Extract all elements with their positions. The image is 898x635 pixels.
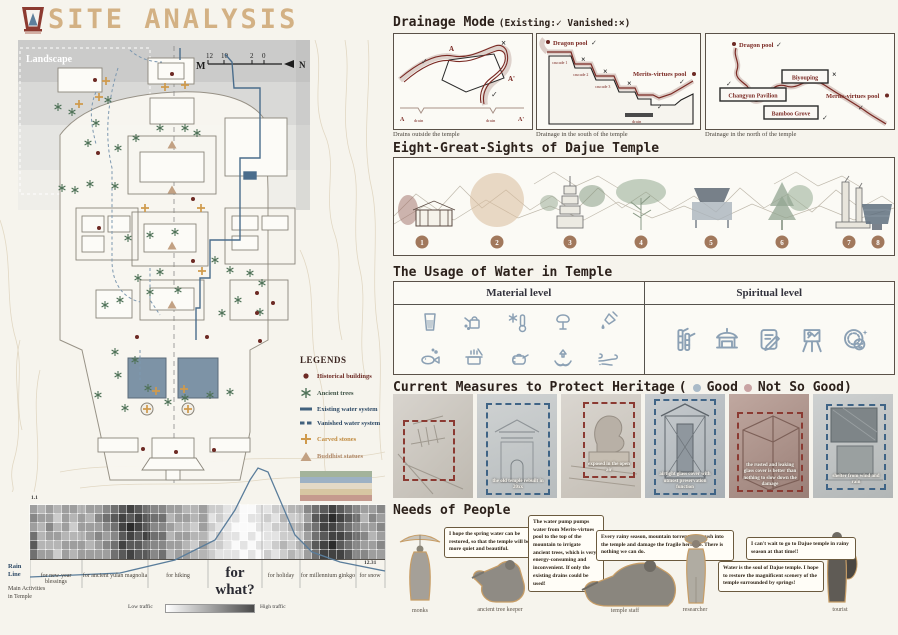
svg-text:4: 4: [639, 239, 643, 247]
heritage-legend-open: (: [679, 380, 687, 395]
sight-numbers: 1 2 3 4 5 6 7 8: [416, 236, 885, 249]
heatmap-cell: [103, 523, 111, 532]
check-mark: ✓: [657, 103, 663, 111]
material-icons-row2: [394, 340, 644, 375]
heatmap-cell: [54, 541, 62, 550]
heatmap-cell: [54, 532, 62, 541]
biyouping-label: Biyouping: [792, 76, 818, 82]
svg-text:1: 1: [420, 239, 424, 247]
heatmap-cell: [232, 523, 240, 532]
needs-title: Needs of People: [393, 503, 510, 518]
svg-text:8: 8: [876, 239, 880, 247]
heatmap-cell: [256, 514, 264, 523]
heatmap-cell: [46, 514, 54, 523]
section-a-label: A: [449, 45, 454, 53]
offering-hands-icon: [551, 345, 575, 369]
good-frame: airtight glass cover with utmost preserv…: [654, 399, 716, 495]
scale-m-label: M: [196, 61, 206, 72]
heatmap-cell: [95, 550, 103, 559]
good-dot-icon: [693, 384, 701, 392]
photo-caption: the rusted and leaking glass cover is be…: [741, 463, 799, 488]
pagoda-logo-icon: [20, 5, 46, 34]
heatmap-cell: [135, 532, 143, 541]
heatmap-cell: [183, 505, 191, 514]
legend-band-chart: [300, 471, 372, 501]
heritage-bad-label: Not So Good: [758, 380, 844, 395]
heatmap-cell: [199, 523, 207, 532]
heatmap-cell: [135, 523, 143, 532]
heatmap-cell: [369, 550, 377, 559]
sight-1-temple-hall: [398, 195, 455, 226]
heatmap-cell: [127, 514, 135, 523]
heatmap-cell: [78, 532, 86, 541]
legend-label: Carved stones: [317, 436, 356, 443]
tourist-quote-bubble: I can't wait to go to Dajue temple in ra…: [746, 537, 856, 560]
heatmap-cell: [54, 550, 62, 559]
cross-mark: ×: [832, 70, 837, 79]
not-so-good-dot-icon: [744, 384, 752, 392]
heatmap-cell: [30, 505, 38, 514]
merits-pool-label: Merits-virtues pool: [633, 71, 686, 78]
material-icons-row1: [394, 305, 644, 340]
legend-item-ancient-trees: Ancient trees: [300, 387, 388, 399]
legend-label: Buddhist statues: [317, 453, 363, 460]
check-mark: ✓: [822, 114, 828, 122]
cleaning-dropper-icon: [595, 310, 619, 334]
heatmap-cell: [127, 505, 135, 514]
heatmap-cell: [111, 550, 119, 559]
heatmap-cell: [208, 550, 216, 559]
heatmap-cell: [199, 541, 207, 550]
heatmap-cell: [30, 550, 38, 559]
heatmap-cell: [191, 532, 199, 541]
heatmap-cell: [191, 505, 199, 514]
heatmap-cell: [280, 550, 288, 559]
heatmap-cell: [199, 550, 207, 559]
heatmap-cell: [329, 523, 337, 532]
heatmap-cell: [127, 550, 135, 559]
check-mark: ✓: [491, 90, 498, 99]
section-a-prime-label: A': [518, 117, 524, 123]
heatmap-cell: [312, 541, 320, 550]
heatmap-cell: [95, 523, 103, 532]
ancient-tree-asterisk-icon: [300, 387, 312, 399]
heatmap-cell: [216, 523, 224, 532]
drains-outside-diagram: A A' ✓ ✓ × A A' drain drain: [394, 34, 532, 129]
heatmap-cell: [103, 541, 111, 550]
fish-pond-icon: [418, 345, 442, 369]
heatmap-cell: [86, 523, 94, 532]
heatmap-cell: [280, 532, 288, 541]
north-label: N: [299, 60, 306, 70]
heatmap-cell: [240, 523, 248, 532]
not-so-good-frame: [403, 420, 455, 481]
heatmap-cell: [232, 550, 240, 559]
heatmap-cell: [280, 523, 288, 532]
heatmap-cell: [119, 523, 127, 532]
heatmap-cell: [280, 514, 288, 523]
heatmap-cell: [127, 541, 135, 550]
heatmap-cell: [183, 514, 191, 523]
temple-staff-figure: [578, 556, 678, 608]
drainage-panel-north: Dragon pool ✓ Biyouping × ✓ Changyun Pav…: [705, 33, 895, 130]
legend-item-historical-buildings: Historical buildings: [300, 371, 388, 381]
vanished-water-line-icon: [300, 419, 312, 427]
heatmap-cell: [369, 514, 377, 523]
legend-item-carved-stones: Carved stones: [300, 433, 388, 445]
heatmap-cell: [38, 550, 46, 559]
heatmap-cell: [377, 514, 385, 523]
photo-caption: the old temple rebuilt in 20xx: [490, 479, 546, 492]
svg-text:2: 2: [495, 239, 499, 247]
heatmap-cell: [345, 541, 353, 550]
heatmap-cell: [95, 541, 103, 550]
heatmap-cell: [312, 550, 320, 559]
sights-title: Eight-Great-Sights of Dajue Temple: [393, 141, 659, 156]
temperature-snowflake-icon: [507, 310, 531, 334]
check-mark: ✓: [726, 80, 732, 88]
heatmap-cell: [199, 505, 207, 514]
carved-stone-cross-icon: [300, 433, 312, 445]
check-mark: ✓: [776, 41, 782, 49]
not-so-good-frame: exposed in the open air: [583, 402, 635, 478]
heatmap-cell: [119, 514, 127, 523]
heatmap-cell: [304, 550, 312, 559]
heatmap-cell: [288, 514, 296, 523]
drain-label: drain: [414, 118, 424, 123]
meditation-face-icon: [840, 325, 870, 355]
check-mark: ✓: [858, 104, 864, 112]
spiritual-level-header: Spiritual level: [645, 282, 895, 305]
heatmap-cell: [264, 523, 272, 532]
drinking-glass-icon: [418, 310, 442, 334]
drainage-panel-south: Dragon pool ✓ × × × ✓ ✓ Merits-virtues p…: [536, 33, 701, 130]
heatmap-cell: [337, 523, 345, 532]
not-so-good-frame: the rusted and leaking glass cover is be…: [737, 412, 803, 492]
heatmap-cell: [208, 541, 216, 550]
section-a-label: A: [400, 117, 405, 123]
heatmap-cell: [183, 532, 191, 541]
legends-title: LEGENDS: [300, 355, 388, 365]
heatmap-cell: [240, 514, 248, 523]
heatmap-cell: [167, 523, 175, 532]
heritage-photo-1: [393, 394, 473, 498]
heatmap-cell: [143, 550, 151, 559]
svg-text:7: 7: [847, 239, 851, 247]
heatmap-cell: [111, 532, 119, 541]
changyun-pavilion-label: Changyun Pavilion: [728, 94, 778, 100]
heatmap-cell: [62, 514, 70, 523]
heatmap-cell: [224, 550, 232, 559]
heatmap-cell: [369, 523, 377, 532]
cross-mark: ×: [603, 67, 608, 76]
heatmap-cell: [151, 541, 159, 550]
heatmap-cell: [353, 505, 361, 514]
heatmap-cell: [70, 541, 78, 550]
heatmap-cell: [353, 532, 361, 541]
heatmap-cell: [256, 541, 264, 550]
heatmap-cell: [296, 532, 304, 541]
sight-2-moon-circle: [470, 173, 524, 227]
water-usage-table: Material level Spiritual level: [393, 281, 895, 375]
heatmap-cell: [143, 505, 151, 514]
dragon-pool-label: Dragon pool: [553, 40, 588, 47]
heritage-photo-4: airtight glass cover with utmost preserv…: [645, 394, 725, 498]
heatmap-cell: [143, 541, 151, 550]
heatmap-cell: [111, 541, 119, 550]
heatmap-cell: [304, 514, 312, 523]
heatmap-cell: [30, 532, 38, 541]
heatmap-cell: [151, 550, 159, 559]
watering-can-icon: [462, 310, 486, 334]
spiritual-level-cell: Spiritual level: [645, 282, 895, 374]
heatmap-cell: [369, 541, 377, 550]
heatmap-cell: [232, 505, 240, 514]
heatmap-cell: [175, 532, 183, 541]
wind-icon: [595, 345, 619, 369]
check-mark: ✓: [421, 57, 428, 66]
heatmap-cell: [46, 505, 54, 514]
heatmap-cell: [240, 505, 248, 514]
heatmap-cell: [256, 505, 264, 514]
heatmap-cell: [199, 514, 207, 523]
heatmap-cell: [46, 523, 54, 532]
monk-quote-bubble: I hope the spring water can be restored,…: [444, 527, 538, 558]
heatmap-cell: [320, 541, 328, 550]
traffic-col-label: for new-year blessings: [30, 573, 82, 585]
heatmap-cell: [256, 523, 264, 532]
heatmap-cell: [361, 523, 369, 532]
heritage-photo-5: the rusted and leaking glass cover is be…: [729, 394, 809, 498]
heatmap-cell: [175, 523, 183, 532]
heatmap-cell: [216, 541, 224, 550]
traffic-col-label: for ancient yulan magnolia: [82, 573, 148, 579]
legend-label: Ancient trees: [317, 390, 354, 397]
heatmap-cell: [167, 532, 175, 541]
heatmap-cell: [175, 505, 183, 514]
heatmap-cell: [54, 505, 62, 514]
heatmap-cell: [38, 541, 46, 550]
heatmap-cell: [312, 505, 320, 514]
traffic-legend-low: Low traffic: [128, 604, 153, 610]
heatmap-cell: [353, 541, 361, 550]
heatmap-cell: [248, 514, 256, 523]
heatmap-cell: [248, 532, 256, 541]
heatmap-cell: [320, 514, 328, 523]
heatmap-cell: [329, 532, 337, 541]
drain-label: drain: [632, 119, 642, 124]
heatmap-cell: [329, 541, 337, 550]
heatmap-cell: [191, 514, 199, 523]
sight-7-stone-towers: [836, 176, 870, 228]
heatmap-cell: [95, 532, 103, 541]
heatmap-cell: [135, 541, 143, 550]
researcher-quote-bubble: Water is the soul of Dajue temple. I hop…: [718, 561, 824, 592]
drainage-subtitle: (Existing:✓ Vanished:×): [499, 18, 631, 29]
heritage-title: Current Measures to Protect Heritage: [393, 380, 675, 395]
photo-caption: airtight glass cover with utmost preserv…: [658, 472, 712, 491]
heatmap-cell: [337, 505, 345, 514]
rain-line-label: Rain Line: [8, 563, 34, 580]
drain-label: drain: [486, 118, 496, 123]
heatmap-cell: [296, 541, 304, 550]
heatmap-cell: [86, 541, 94, 550]
water-usage-title: The Usage of Water in Temple: [393, 265, 612, 280]
cascade-label: cascade 3: [595, 84, 610, 89]
heatmap-cell: [320, 523, 328, 532]
heatmap-cell: [135, 550, 143, 559]
heatmap-cell: [264, 532, 272, 541]
heatmap-cell: [248, 505, 256, 514]
heatmap-cell: [312, 523, 320, 532]
heatmap-cell: [78, 541, 86, 550]
historical-building-dot-icon: [300, 371, 312, 381]
heatmap-cell: [361, 532, 369, 541]
heatmap-cell: [361, 541, 369, 550]
heatmap-cell: [46, 532, 54, 541]
heatmap-cell: [175, 514, 183, 523]
svg-text:5: 5: [709, 239, 713, 247]
heatmap-cell: [345, 505, 353, 514]
heatmap-cell: [240, 541, 248, 550]
heatmap-cell: [175, 550, 183, 559]
heatmap-cell: [54, 514, 62, 523]
heatmap-cell: [119, 532, 127, 541]
monk-figure: [398, 528, 442, 606]
researcher-figure: [678, 531, 714, 607]
cascade-label: cascade 2: [573, 72, 588, 77]
heatmap-cell: [345, 550, 353, 559]
heatmap-cell: [127, 523, 135, 532]
tourist-label: tourist: [820, 607, 860, 613]
heatmap-cell: [288, 523, 296, 532]
heatmap-cell: [54, 523, 62, 532]
legend-label: Vanished water system: [317, 420, 380, 427]
heatmap-cell: [38, 505, 46, 514]
heatmap-cell: [70, 550, 78, 559]
heatmap-cell: [377, 550, 385, 559]
heatmap-cell: [95, 505, 103, 514]
heritage-good-label: Good: [707, 380, 738, 395]
temple-pavilion-icon: [712, 325, 742, 355]
heritage-legend-close: ): [844, 380, 852, 395]
heatmap-cell: [151, 532, 159, 541]
heatmap-cell: [361, 514, 369, 523]
heatmap-cell: [62, 541, 70, 550]
traffic-gradient-bar: [165, 604, 255, 613]
drainage-north-diagram: Dragon pool ✓ Biyouping × ✓ Changyun Pav…: [706, 34, 894, 129]
sight-6-ginkgo-tree: [768, 182, 813, 230]
heatmap-cell: [38, 523, 46, 532]
heatmap-cell: [151, 523, 159, 532]
scripture-scroll-icon: [754, 325, 784, 355]
monk-label: monks: [398, 608, 442, 614]
drainage-panel3-caption: Drainage in the north of the temple: [705, 131, 796, 139]
heatmap-cell: [320, 505, 328, 514]
heatmap-cell: [296, 505, 304, 514]
tree-keeper-label: ancient tree keeper: [455, 607, 545, 613]
heatmap-cell: [369, 532, 377, 541]
heatmap-cell: [248, 523, 256, 532]
heatmap-cell: [159, 541, 167, 550]
site-analysis-poster: SITE ANALYSIS: [0, 0, 898, 635]
heatmap-cell: [70, 514, 78, 523]
heatmap-cell: [167, 550, 175, 559]
heritage-photo-3: exposed in the open air: [561, 394, 641, 498]
existing-water-line-icon: [300, 405, 312, 413]
legend-label: Existing water system: [317, 406, 378, 413]
heatmap-cell: [264, 550, 272, 559]
cascade-label: cascade 1: [552, 60, 567, 65]
heritage-photo-2: the old temple rebuilt in 20xx: [477, 394, 557, 498]
heatmap-cell: [264, 505, 272, 514]
heatmap-cell: [272, 541, 280, 550]
heatmap-cell: [191, 541, 199, 550]
heatmap-cell: [304, 523, 312, 532]
heatmap-cell: [111, 523, 119, 532]
legends-panel: LEGENDS Historical buildings Ancient tre…: [300, 355, 388, 501]
heatmap-cell: [62, 523, 70, 532]
heatmap-cell: [377, 505, 385, 514]
heatmap-cell: [119, 505, 127, 514]
heatmap-cell: [183, 541, 191, 550]
heatmap-cell: [216, 505, 224, 514]
heatmap-cell: [86, 550, 94, 559]
heatmap-cell: [320, 532, 328, 541]
heatmap-cell: [224, 505, 232, 514]
heatmap-cell: [167, 541, 175, 550]
heatmap-cell: [111, 505, 119, 514]
heatmap-cell: [175, 541, 183, 550]
heatmap-cell: [159, 514, 167, 523]
good-frame: the old temple rebuilt in 20xx: [486, 403, 550, 495]
activities-label: Main Activities in Temple: [8, 586, 48, 602]
heatmap-cell: [62, 550, 70, 559]
heatmap-cell: [78, 514, 86, 523]
heatmap-cell: [46, 550, 54, 559]
heatmap-cell: [337, 550, 345, 559]
heatmap-cell: [62, 532, 70, 541]
heatmap-cell: [224, 541, 232, 550]
scale-tick: 0: [262, 52, 266, 60]
heatmap-cell: [86, 514, 94, 523]
heatmap-cell: [159, 550, 167, 559]
heatmap-cell: [70, 505, 78, 514]
drainage-panel-outside: A A' ✓ ✓ × A A' drain drain: [393, 33, 533, 130]
scale-tick: 12: [206, 52, 214, 60]
temple-staff-label: temple staff: [585, 608, 665, 614]
heatmap-cell: [288, 532, 296, 541]
heatmap-cell: [30, 523, 38, 532]
heatmap-cell: [159, 532, 167, 541]
heatmap-cell: [167, 505, 175, 514]
heatmap-cell: [345, 523, 353, 532]
heatmap-cell: [78, 523, 86, 532]
heatmap-cell: [191, 550, 199, 559]
heatmap-cell: [304, 541, 312, 550]
heatmap-cell: [159, 505, 167, 514]
heatmap-cell: [377, 523, 385, 532]
heatmap-cell: [272, 505, 280, 514]
photo-caption: exposed in the open air: [587, 462, 631, 475]
buddhist-statue-triangle-icon: [300, 451, 312, 462]
heatmap-cell: [143, 523, 151, 532]
heatmap-cell: [345, 532, 353, 541]
cross-mark: ×: [501, 38, 506, 48]
legend-item-vanished-water: Vanished water system: [300, 419, 388, 427]
scale-tick: 2: [250, 52, 254, 60]
heatmap-cell: [46, 541, 54, 550]
